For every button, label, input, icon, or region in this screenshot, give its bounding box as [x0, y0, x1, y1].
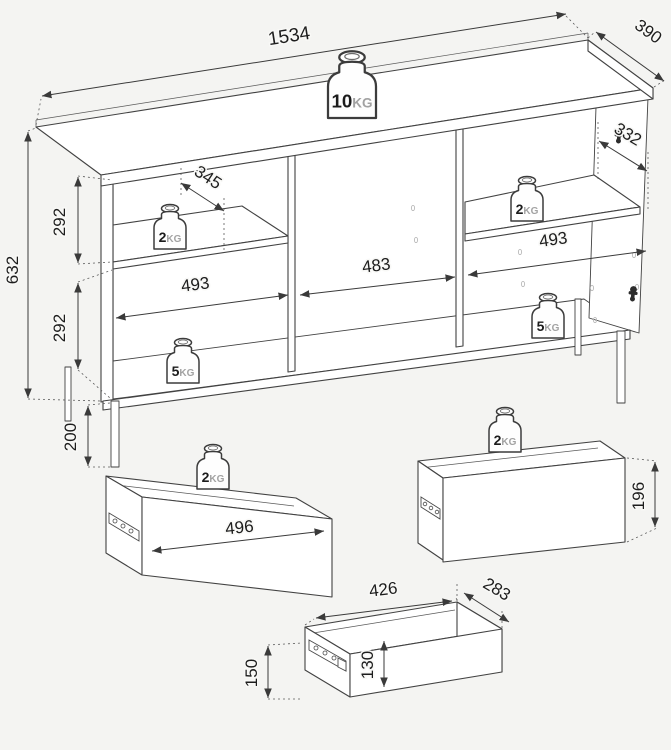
- drawer-large-drawing: 496: [106, 476, 332, 597]
- load-unit: KG: [501, 437, 516, 448]
- dim-center-compartment-width: 483: [361, 254, 391, 276]
- load-value: 5: [172, 363, 180, 379]
- load-value: 2: [516, 201, 524, 217]
- load-value: 2: [159, 229, 167, 245]
- load-unit: KG: [544, 323, 559, 334]
- weight-drawer-large-2kg-icon: 2KG: [197, 445, 229, 490]
- load-value: 5: [537, 318, 545, 334]
- dim-drawer-wide-height: 196: [629, 482, 648, 510]
- weight-top-10kg-icon: 10KG: [328, 51, 376, 118]
- dim-drawer-small-front-height: 150: [242, 659, 261, 687]
- dim-drawer-large-width: 496: [224, 517, 254, 539]
- dim-overall-depth: 390: [631, 16, 665, 48]
- dim-body-height: 632: [3, 256, 22, 284]
- dim-leg-height: 200: [61, 423, 80, 451]
- dim-drawer-small-depth: 283: [480, 574, 514, 605]
- dim-drawer-small-inner-height: 130: [358, 651, 377, 679]
- load-unit: KG: [352, 96, 372, 111]
- load-unit: KG: [209, 474, 224, 485]
- load-value: 2: [494, 432, 502, 448]
- dim-upper-section: 292: [50, 208, 69, 236]
- load-value: 10: [331, 91, 352, 112]
- load-unit: KG: [523, 206, 538, 217]
- cabinet-left-panel: [101, 178, 113, 402]
- drawer-wide-drawing: 196: [418, 441, 657, 562]
- load-value: 2: [202, 469, 210, 485]
- weight-drawer-wide-2kg-icon: 2KG: [489, 408, 521, 453]
- dim-left-compartment-width: 493: [180, 273, 210, 295]
- cabinet-divider-right: [456, 127, 463, 347]
- furniture-dimension-diagram: 10KG 2KG 5KG 2KG 5KG 1534 390 632: [0, 0, 671, 750]
- diagram-canvas: 10KG 2KG 5KG 2KG 5KG 1534 390 632: [0, 0, 671, 750]
- dim-overall-width: 1534: [267, 23, 312, 50]
- dim-lower-section: 292: [50, 314, 69, 342]
- cabinet-divider-left: [288, 153, 295, 372]
- drawer-small-drawing: 426 283 150 130: [242, 574, 514, 699]
- dim-drawer-small-width: 426: [368, 578, 398, 600]
- load-unit: KG: [166, 234, 181, 245]
- dim-right-compartment-width: 493: [538, 228, 569, 251]
- load-unit: KG: [179, 368, 194, 379]
